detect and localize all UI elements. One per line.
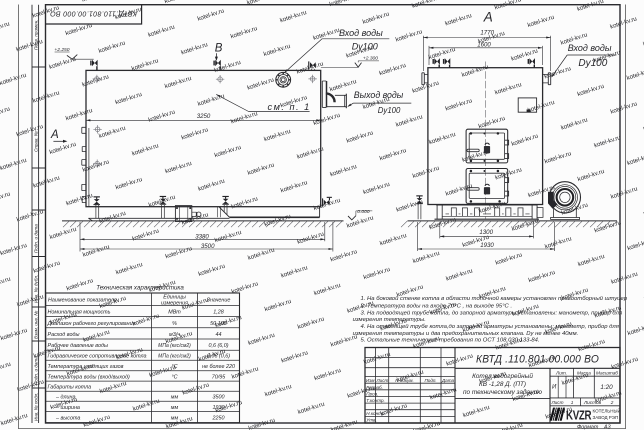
svg-text:Dy100: Dy100 [352, 42, 378, 52]
svg-text:kotel-kv.ru: kotel-kv.ru [164, 160, 192, 175]
svg-text:kotel-kv.ru: kotel-kv.ru [329, 248, 357, 263]
svg-text:kotel-kv.ru: kotel-kv.ru [197, 178, 225, 193]
svg-text:– высота: – высота [55, 415, 80, 421]
svg-text:kotel-kv.ru: kotel-kv.ru [164, 75, 192, 90]
svg-text:В: В [215, 42, 223, 54]
svg-text:1930: 1930 [480, 242, 494, 249]
svg-text:kotel-kv.ru: kotel-kv.ru [15, 123, 43, 138]
svg-text:kotel-kv.ru: kotel-kv.ru [494, 0, 522, 11]
svg-text:Утв.: Утв. [366, 418, 376, 423]
svg-text:3380: 3380 [195, 233, 209, 240]
svg-text:КОТЕЛЬНЫЙ: КОТЕЛЬНЫЙ [593, 407, 621, 414]
svg-text:Значение: Значение [207, 298, 231, 304]
svg-text:kotel-kv.ru: kotel-kv.ru [132, 312, 160, 327]
svg-text:kotel-kv.ru: kotel-kv.ru [246, 0, 274, 7]
svg-text:kotel-kv.ru: kotel-kv.ru [16, 378, 44, 393]
svg-text:kotel-kv.ru: kotel-kv.ru [544, 150, 572, 165]
svg-text:kotel-kv.ru: kotel-kv.ru [428, 131, 456, 146]
svg-text:kotel-kv.ru: kotel-kv.ru [280, 179, 308, 194]
svg-text:3. На подводящей трубе котла,: 3. На подводящей трубе котла, до запорно… [361, 310, 623, 317]
svg-text:kotel-kv.ru: kotel-kv.ru [230, 25, 258, 40]
svg-text:КВТД .110.801.00.000 ВО: КВТД .110.801.00.000 ВО [476, 353, 599, 365]
svg-text:Инв. № дубл.: Инв. № дубл. [33, 275, 38, 303]
svg-text:kotel-kv.ru: kotel-kv.ru [0, 20, 11, 35]
svg-text:kotel-kv.ru: kotel-kv.ru [379, 232, 407, 247]
svg-text:Изм: Изм [366, 378, 375, 383]
svg-text:ЗАВОД РЭП: ЗАВОД РЭП [593, 415, 619, 420]
svg-text:по техническому заданию: по техническому заданию [463, 388, 542, 396]
svg-text:kotel-kv.ru: kotel-kv.ru [478, 200, 506, 215]
svg-text:50-100: 50-100 [210, 321, 227, 327]
svg-text:Габариты котла: Габариты котла [48, 384, 92, 390]
svg-text:Лит.: Лит. [555, 370, 567, 375]
svg-text:2250: 2250 [212, 415, 225, 421]
svg-text:1. На боковой стенке котла в: 1. На боковой стенке котла в области топ… [361, 295, 628, 302]
svg-text:КВТД.110.801.00.000 ВО: КВТД.110.801.00.000 ВО [50, 10, 137, 18]
svg-text:Вход воды: Вход воды [339, 28, 383, 38]
svg-text:kotel-kv.ru: kotel-kv.ru [197, 263, 225, 278]
svg-text:мм: мм [171, 415, 179, 421]
svg-text:kotel-kv.ru: kotel-kv.ru [626, 152, 644, 167]
svg-text:kotel-kv.ru: kotel-kv.ru [246, 76, 274, 91]
svg-text:kotel-kv.ru: kotel-kv.ru [115, 176, 143, 191]
svg-text:kotel-kv.ru: kotel-kv.ru [247, 162, 275, 177]
svg-text:70/95: 70/95 [212, 374, 226, 380]
svg-text:kotel-kv.ru: kotel-kv.ru [544, 235, 572, 250]
svg-text:kotel-kv.ru: kotel-kv.ru [444, 12, 472, 27]
svg-text:kotel-kv.ru: kotel-kv.ru [363, 266, 391, 281]
svg-text:kotel-kv.ru: kotel-kv.ru [363, 351, 391, 366]
svg-text:kotel-kv.ru: kotel-kv.ru [132, 398, 160, 413]
svg-text:1600: 1600 [477, 41, 491, 48]
svg-text:Формат: Формат [577, 424, 599, 430]
svg-text:И: И [552, 385, 557, 391]
svg-text:0.000: 0.000 [357, 209, 370, 215]
svg-text:Котел водогрейный: Котел водогрейный [472, 372, 533, 380]
svg-text:kotel-kv.ru: kotel-kv.ru [0, 276, 11, 291]
svg-text:Наименование показателя: Наименование показателя [48, 298, 117, 304]
svg-text:Т.контр.: Т.контр. [366, 398, 385, 403]
svg-text:kotel-kv.ru: kotel-kv.ru [16, 208, 44, 223]
svg-text:kotel-kv.ru: kotel-kv.ru [297, 401, 325, 416]
svg-text:kotel-kv.ru: kotel-kv.ru [610, 271, 638, 286]
svg-text:kotel-kv.ru: kotel-kv.ru [214, 144, 242, 159]
svg-text:kotel-kv.ru: kotel-kv.ru [329, 163, 357, 178]
svg-text:Диапазон рабочего регулировани: Диапазон рабочего регулирования [47, 321, 136, 327]
svg-text:kotel-kv.ru: kotel-kv.ru [576, 0, 604, 13]
svg-text:kotel-kv.ru: kotel-kv.ru [280, 264, 308, 279]
svg-text:Масса: Масса [577, 370, 591, 375]
svg-text:МВт: МВт [168, 310, 181, 316]
svg-text:kotel-kv.ru: kotel-kv.ru [115, 261, 143, 276]
svg-text:kotel-kv.ru: kotel-kv.ru [98, 125, 126, 140]
svg-text:5. Остальные технические треб: 5. Остальные технические требования по О… [361, 337, 540, 343]
svg-text:kotel-kv.ru: kotel-kv.ru [378, 62, 406, 77]
svg-text:N докум.: N докум. [395, 378, 414, 383]
svg-text:3500: 3500 [201, 243, 215, 250]
svg-text:Подп. и дата: Подп. и дата [33, 224, 38, 253]
svg-text:kotel-kv.ru: kotel-kv.ru [231, 365, 259, 380]
svg-text:kotel-kv.ru: kotel-kv.ru [280, 349, 308, 364]
svg-text:kotel-kv.ru: kotel-kv.ru [131, 227, 159, 242]
svg-text:Подп. и дата: Подп. и дата [33, 356, 38, 385]
svg-text:Перв. примен.: Перв. примен. [33, 19, 38, 50]
svg-text:0,6 (6,0): 0,6 (6,0) [208, 343, 228, 349]
svg-text:Номинальная мощность: Номинальная мощность [48, 310, 111, 316]
svg-text:kotel-kv.ru: kotel-kv.ru [247, 332, 275, 347]
svg-text:kotel-kv.ru: kotel-kv.ru [379, 147, 407, 162]
svg-text:kotel-kv.ru: kotel-kv.ru [312, 27, 340, 42]
svg-text:Инв. № подл.: Инв. № подл. [33, 392, 38, 421]
svg-text:Dy100: Dy100 [578, 58, 607, 69]
svg-text:Температура воды (вход/выход): Температура воды (вход/выход) [48, 374, 131, 380]
svg-text:kotel-kv.ru: kotel-kv.ru [444, 97, 472, 112]
svg-text:kotel-kv.ru: kotel-kv.ru [114, 91, 142, 106]
svg-text:kotel-kv.ru: kotel-kv.ru [609, 15, 637, 30]
svg-text:kotel-kv.ru: kotel-kv.ru [16, 293, 44, 308]
svg-text:kotel-kv.ru: kotel-kv.ru [527, 14, 555, 29]
svg-text:kotel-kv.ru: kotel-kv.ru [164, 245, 192, 260]
svg-text:kotel-kv.ru: kotel-kv.ru [626, 67, 644, 82]
svg-text:kotel-kv.ru: kotel-kv.ru [0, 327, 28, 342]
svg-text:Масштаб: Масштаб [596, 370, 618, 375]
svg-text:kotel-kv.ru: kotel-kv.ru [65, 192, 93, 207]
svg-text:м3/ч: м3/ч [169, 332, 180, 338]
svg-text:kotel-kv.ru: kotel-kv.ru [82, 329, 110, 344]
svg-text:kotel-kv.ru: kotel-kv.ru [296, 60, 324, 75]
svg-text:kotel-kv.ru: kotel-kv.ru [263, 43, 291, 58]
svg-text:kotel-kv.ru: kotel-kv.ru [577, 168, 605, 183]
svg-text:kotel-kv.ru: kotel-kv.ru [610, 100, 638, 115]
svg-text:– ширина: – ширина [55, 405, 80, 411]
svg-text:1,28: 1,28 [213, 310, 224, 316]
svg-text:Лист: Лист [550, 400, 563, 405]
svg-text:kotel-kv.ru: kotel-kv.ru [147, 24, 175, 39]
svg-text:1:20: 1:20 [600, 384, 613, 391]
svg-text:kotel-kv.ru: kotel-kv.ru [412, 250, 440, 265]
svg-text:kotel-kv.ru: kotel-kv.ru [346, 214, 374, 229]
svg-text:3500: 3500 [213, 394, 225, 400]
svg-text:kotel-kv.ru: kotel-kv.ru [49, 226, 77, 241]
svg-text:Лист: Лист [376, 378, 389, 383]
svg-text:kotel-kv.ru: kotel-kv.ru [462, 404, 490, 419]
svg-text:не более 220: не более 220 [202, 364, 235, 370]
svg-text:Н.контр.: Н.контр. [366, 411, 385, 416]
svg-text:kotel-kv.ru: kotel-kv.ru [412, 165, 440, 180]
svg-text:Температура уходящих газов: Температура уходящих газов [48, 364, 124, 370]
svg-text:kotel-kv.ru: kotel-kv.ru [32, 260, 60, 275]
svg-text:kotel-kv.ru: kotel-kv.ru [82, 243, 110, 258]
svg-text:kotel-kv.ru: kotel-kv.ru [297, 316, 325, 331]
svg-text:kotel-kv.ru: kotel-kv.ru [0, 191, 11, 206]
svg-text:kotel-kv.ru: kotel-kv.ru [411, 80, 439, 95]
svg-text:Разраб.: Разраб. [366, 385, 383, 390]
svg-text:kotel-kv.ru: kotel-kv.ru [528, 269, 556, 284]
svg-text:°С: °С [171, 374, 177, 380]
svg-text:kotel-kv.ru: kotel-kv.ru [577, 338, 605, 353]
svg-text:kotel-kv.ru: kotel-kv.ru [494, 81, 522, 96]
svg-text:°С: °С [171, 364, 177, 370]
svg-text:– длина: – длина [55, 394, 75, 400]
svg-text:КВ -1,28 Д. (ПТ): КВ -1,28 Д. (ПТ) [479, 381, 526, 388]
svg-text:см. п. 1: см. п. 1 [268, 102, 311, 112]
svg-text:1300: 1300 [479, 229, 493, 236]
svg-text:kotel-kv.ru: kotel-kv.ru [313, 367, 341, 382]
svg-text:kotel-kv.ru: kotel-kv.ru [395, 113, 423, 128]
svg-text:Листов: Листов [583, 400, 602, 405]
svg-text:44: 44 [216, 332, 222, 338]
svg-text:kotel-kv.ru: kotel-kv.ru [0, 361, 12, 376]
svg-text:А3: А3 [603, 424, 611, 430]
svg-text:kotel-kv.ru: kotel-kv.ru [147, 109, 175, 124]
svg-text:kotel-kv.ru: kotel-kv.ru [560, 116, 588, 131]
svg-text:kotel-kv.ru: kotel-kv.ru [230, 110, 258, 125]
svg-text:МПа (кгс/см2): МПа (кгс/см2) [158, 353, 191, 359]
svg-text:измерения температуры.: измерения температуры. [353, 317, 426, 323]
svg-text:kotel-kv.ru: kotel-kv.ru [445, 267, 473, 282]
svg-text:kotel-kv.ru: kotel-kv.ru [49, 141, 77, 156]
svg-text:kotel-kv.ru: kotel-kv.ru [362, 181, 390, 196]
svg-text:kotel-kv.ru: kotel-kv.ru [99, 380, 127, 395]
svg-text:kotel-kv.ru: kotel-kv.ru [0, 105, 11, 120]
svg-text:kotel-kv.ru: kotel-kv.ru [362, 11, 390, 26]
svg-text:kotel-kv.ru: kotel-kv.ru [213, 59, 241, 74]
svg-text:1: 1 [571, 400, 574, 405]
svg-text:kotel-kv.ru: kotel-kv.ru [15, 38, 43, 53]
svg-text:измерения: измерения [161, 300, 188, 306]
svg-text:Пров.: Пров. [366, 391, 378, 396]
svg-text:kotel-kv.ru: kotel-kv.ru [576, 83, 604, 98]
svg-text:2: 2 [610, 400, 614, 405]
svg-text:Вход воды: Вход воды [568, 43, 612, 53]
svg-text:kotel-kv.ru: kotel-kv.ru [296, 231, 324, 246]
svg-text:kotel-kv.ru: kotel-kv.ru [230, 195, 258, 210]
svg-text:мм: мм [171, 394, 179, 400]
svg-text:kotel-kv.ru: kotel-kv.ru [197, 93, 225, 108]
svg-text:kotel-kv.ru: kotel-kv.ru [264, 298, 292, 313]
svg-text:kotel-kv.ru: kotel-kv.ru [214, 229, 242, 244]
svg-text:kotel-kv.ru: kotel-kv.ru [429, 386, 457, 401]
svg-text:kotel-kv.ru: kotel-kv.ru [511, 133, 539, 148]
svg-text:kotel-kv.ru: kotel-kv.ru [279, 9, 307, 24]
svg-text:kotel-kv.ru: kotel-kv.ru [82, 414, 110, 429]
svg-text:kotel-kv.ru: kotel-kv.ru [313, 197, 341, 212]
svg-text:kotel-kv.ru: kotel-kv.ru [197, 7, 225, 22]
svg-text:kotel-kv.ru: kotel-kv.ru [395, 198, 423, 213]
svg-text:Рабочее давление воды: Рабочее давление воды [48, 343, 108, 349]
svg-text:kotel-kv.ru: kotel-kv.ru [395, 28, 423, 43]
svg-text:kotel-kv.ru: kotel-kv.ru [0, 157, 28, 172]
svg-text:3250: 3250 [197, 113, 211, 120]
svg-text:kotel-kv.ru: kotel-kv.ru [98, 40, 126, 55]
svg-text:Дата: Дата [441, 378, 455, 383]
svg-text:Гидравлическое сопротивление к: Гидравлическое сопротивление котла [48, 353, 147, 359]
svg-text:kotel-kv.ru: kotel-kv.ru [478, 115, 506, 130]
svg-text:kotel-kv.ru: kotel-kv.ru [263, 128, 291, 143]
svg-text:kotel-kv.ru: kotel-kv.ru [180, 41, 208, 56]
svg-text:0,06 (0,6): 0,06 (0,6) [207, 353, 230, 359]
svg-text:kotel-kv.ru: kotel-kv.ru [131, 142, 159, 157]
svg-text:kotel-kv.ru: kotel-kv.ru [0, 72, 27, 87]
svg-text:4. На отводящей трубе котла,д: 4. На отводящей трубе котла,до запорной … [361, 323, 620, 330]
svg-text:kotel-kv.ru: kotel-kv.ru [627, 322, 644, 337]
svg-text:KVZR: KVZR [566, 409, 591, 423]
svg-text:1930: 1930 [213, 405, 225, 411]
svg-text:мм: мм [171, 405, 179, 411]
svg-text:kotel-kv.ru: kotel-kv.ru [181, 381, 209, 396]
svg-text:Подп.: Подп. [424, 378, 436, 383]
svg-text:А: А [483, 10, 493, 25]
svg-text:kotel-kv.ru: kotel-kv.ru [0, 412, 28, 427]
svg-text:kotel-kv.ru: kotel-kv.ru [32, 174, 60, 189]
svg-text:kotel-kv.ru: kotel-kv.ru [264, 383, 292, 398]
svg-text:kotel-kv.ru: kotel-kv.ru [626, 237, 644, 252]
svg-text:kotel-kv.ru: kotel-kv.ru [48, 56, 76, 71]
svg-text:Расход воды: Расход воды [48, 332, 80, 338]
svg-text:kotel-kv.ru: kotel-kv.ru [0, 0, 27, 2]
svg-text:kotel-kv.ru: kotel-kv.ru [593, 134, 621, 149]
svg-text:kotel-kv.ru: kotel-kv.ru [577, 253, 605, 268]
svg-text:Справ. №: Справ. № [33, 131, 38, 152]
svg-text:kotel-kv.ru: kotel-kv.ru [313, 282, 341, 297]
svg-text:Dy100: Dy100 [378, 106, 401, 115]
svg-text:А: А [50, 129, 59, 141]
svg-text:Техническая характеристика: Техническая характеристика [96, 285, 184, 292]
svg-text:МПа (кгс/см2): МПа (кгс/см2) [158, 343, 191, 349]
svg-text:kotel-kv.ru: kotel-kv.ru [81, 0, 109, 4]
svg-text:kotel-kv.ru: kotel-kv.ru [543, 65, 571, 80]
svg-text:kotel-kv.ru: kotel-kv.ru [66, 277, 94, 292]
svg-text:%: % [172, 321, 177, 327]
svg-text:kotel-kv.ru: kotel-kv.ru [0, 242, 28, 257]
svg-text:измерения температуры и два пр: измерения температуры и два предохраните… [353, 331, 579, 337]
svg-text:Выход воды: Выход воды [354, 90, 404, 100]
svg-text:Взам. инв. №: Взам. инв. № [33, 311, 38, 339]
svg-text:kotel-kv.ru: kotel-kv.ru [495, 251, 523, 266]
svg-text:kotel-kv.ru: kotel-kv.ru [445, 352, 473, 367]
svg-text:1770: 1770 [480, 30, 494, 37]
svg-text:kotel-kv.ru: kotel-kv.ru [346, 129, 374, 144]
svg-text:kotel-kv.ru: kotel-kv.ru [610, 185, 638, 200]
svg-text:kotel-kv.ru: kotel-kv.ru [180, 126, 208, 141]
svg-text:2. Температура воды на входе: 2. Температура воды на входе 70°С , на в… [360, 303, 513, 309]
